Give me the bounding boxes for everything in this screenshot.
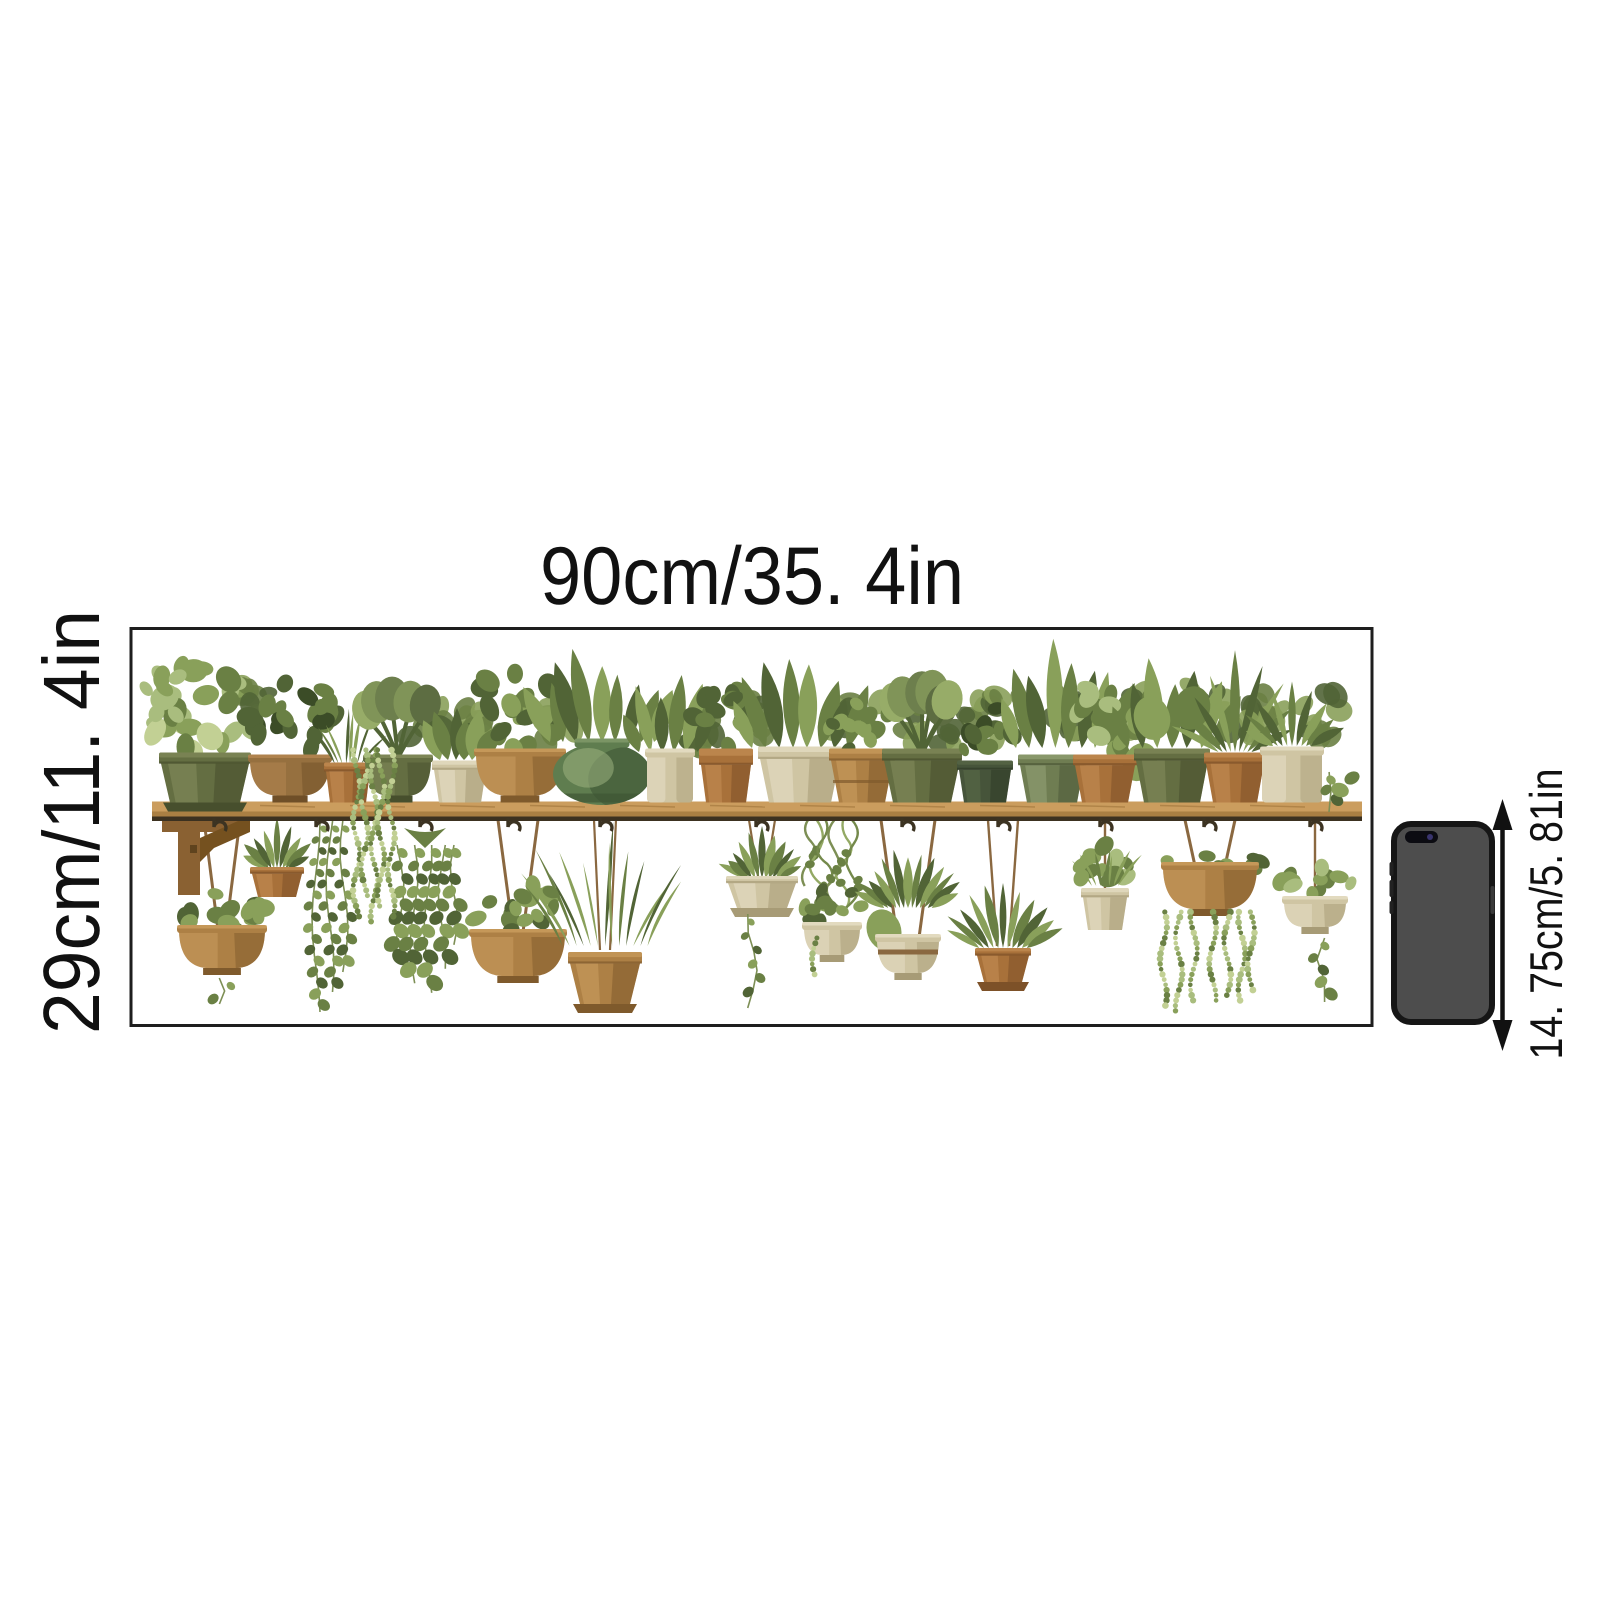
svg-text:90cm/35. 4in: 90cm/35. 4in [540,531,964,622]
svg-text:29cm/11. 4in: 29cm/11. 4in [27,610,116,1034]
svg-text:14. 75cm/5. 81in: 14. 75cm/5. 81in [1520,769,1572,1060]
